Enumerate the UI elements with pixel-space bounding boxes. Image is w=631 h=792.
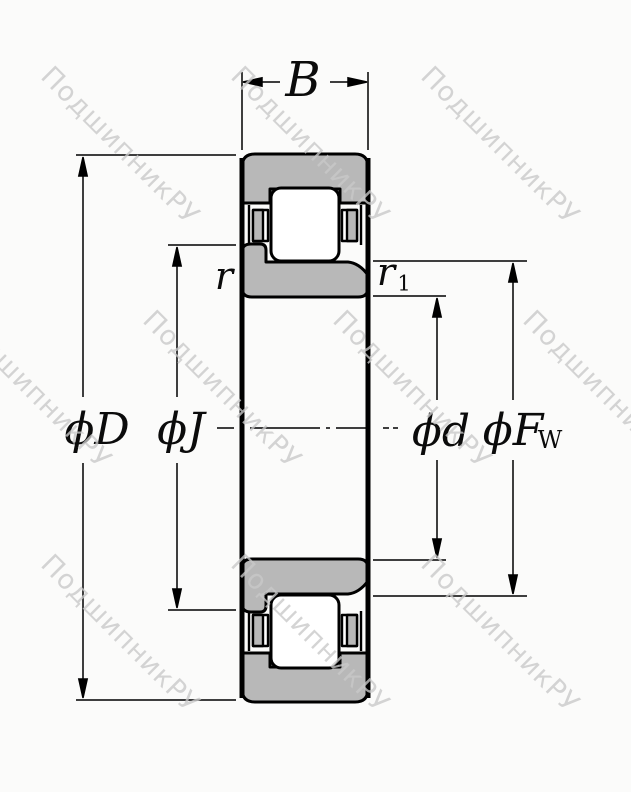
label-width-B: B <box>285 56 320 104</box>
label-raceway-diameter: ϕF <box>483 409 544 453</box>
arrowhead-down <box>433 539 441 558</box>
arrowhead-up <box>509 263 517 282</box>
label-chamfer-r1: r <box>377 253 395 291</box>
arrowhead-down <box>173 589 181 608</box>
arrowhead-up <box>173 247 181 266</box>
bearing-cross-section-drawing <box>0 0 631 792</box>
cage-bar-bottom-right <box>347 615 357 646</box>
cage-bar-top-left <box>253 210 263 241</box>
label-chamfer-r1-subscript: 1 <box>397 274 410 295</box>
label-raceway-diameter-subscript: W <box>538 428 563 452</box>
label-flange-diameter: ϕJ <box>157 408 205 452</box>
label-outer-diameter: ϕD <box>64 408 129 452</box>
roller-top <box>271 188 339 261</box>
arrowhead-down <box>509 575 517 594</box>
arrowhead-right <box>348 78 367 86</box>
roller-bottom <box>271 595 339 668</box>
cage-bar-top-right <box>347 210 357 241</box>
arrowhead-up <box>433 298 441 317</box>
cage-bar-bottom-left <box>253 615 263 646</box>
label-chamfer-r: r <box>215 257 233 295</box>
arrowhead-down <box>79 679 87 698</box>
bearing-drawing-page: B ϕD ϕJ ϕd ϕF W r r 1 ПодшипникРУ Подшип… <box>0 0 631 792</box>
arrowhead-up <box>79 157 87 176</box>
label-bore-diameter: ϕd <box>412 410 470 454</box>
arrowhead-left <box>243 78 262 86</box>
